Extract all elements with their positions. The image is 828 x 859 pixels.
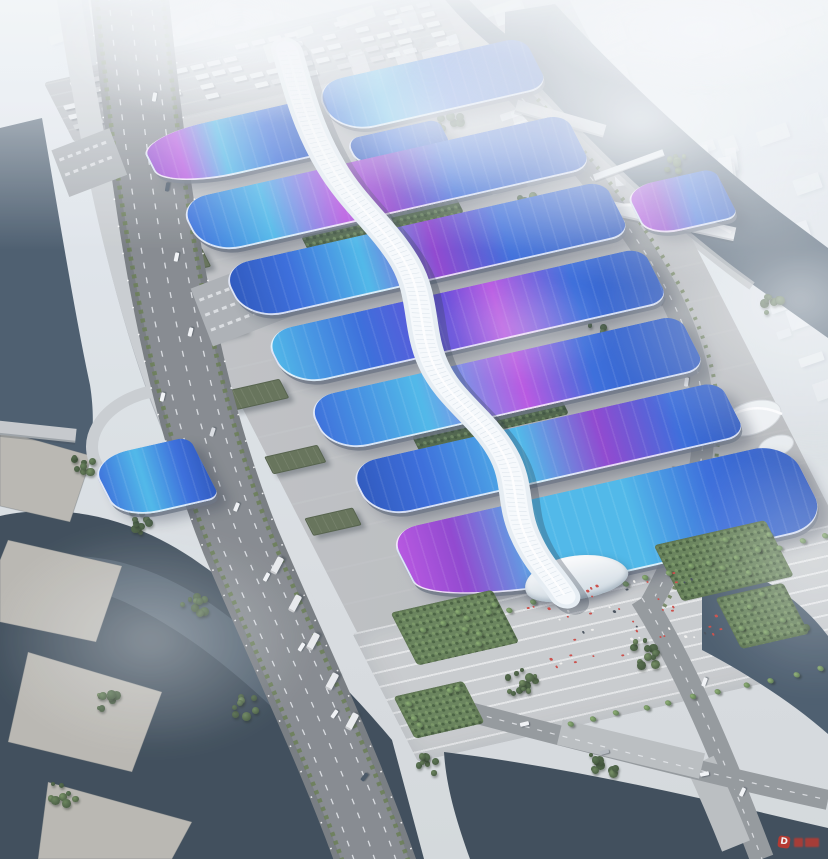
car: [360, 772, 369, 782]
scene: D: [0, 0, 828, 859]
car: [684, 377, 689, 386]
bus: [345, 712, 360, 731]
car: [739, 787, 746, 797]
watermark: D: [778, 835, 824, 853]
car: [297, 642, 305, 652]
car: [159, 392, 165, 402]
bus: [306, 632, 321, 651]
car: [520, 721, 530, 727]
car: [263, 572, 271, 582]
watermark-text-blur: [805, 838, 819, 847]
watermark-logo: D: [777, 835, 791, 849]
watermark-text-blur: [794, 838, 803, 847]
car: [209, 427, 216, 437]
car: [600, 749, 610, 755]
bus: [288, 594, 303, 613]
car: [700, 771, 710, 777]
car: [165, 182, 171, 192]
crowd-dot: [569, 654, 572, 657]
car: [152, 92, 158, 102]
car: [701, 677, 708, 687]
car: [330, 709, 338, 719]
car: [174, 252, 180, 262]
crowd-dot: [684, 635, 687, 638]
car: [187, 327, 193, 337]
bus: [325, 672, 340, 691]
car: [233, 502, 240, 512]
bus: [270, 556, 285, 575]
